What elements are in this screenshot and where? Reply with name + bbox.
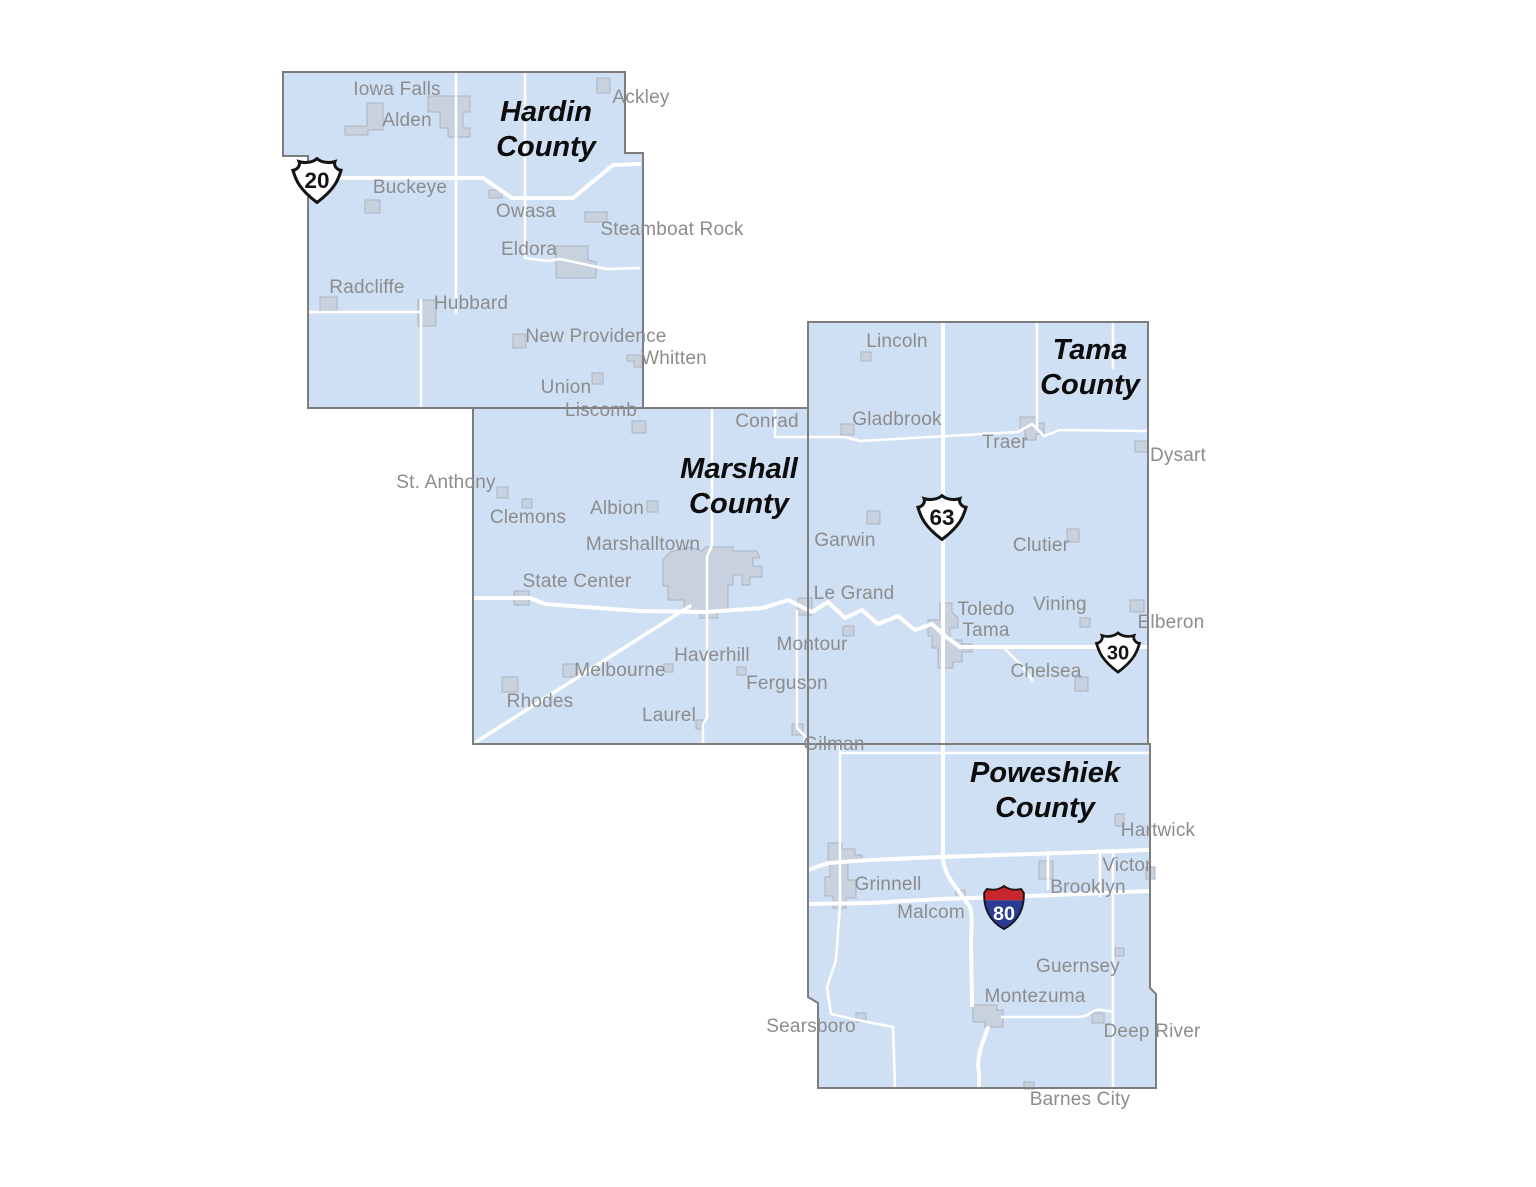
town-label-grinnell: Grinnell <box>854 874 921 896</box>
town-label-lincoln: Lincoln <box>866 331 928 353</box>
town-label-gilman: Gilman <box>803 734 864 756</box>
town-label-haverhill: Haverhill <box>674 645 750 667</box>
town-shape-buckeye <box>365 200 380 213</box>
town-label-radcliffe: Radcliffe <box>329 277 404 299</box>
town-label-hubbard: Hubbard <box>434 293 508 315</box>
county-label-marshall-county: MarshallCounty <box>680 452 798 522</box>
map-base-graphics <box>0 0 1536 1187</box>
town-label-malcom: Malcom <box>897 902 965 924</box>
town-label-owasa: Owasa <box>496 201 556 223</box>
town-label-alden: Alden <box>382 110 432 132</box>
town-label-deep-river: Deep River <box>1103 1021 1200 1043</box>
county-label-tama-county: TamaCounty <box>1040 333 1140 403</box>
svg-text:30: 30 <box>1107 642 1129 664</box>
town-shape-albion <box>647 501 658 512</box>
svg-text:20: 20 <box>305 168 330 193</box>
town-label-whitten: Whitten <box>641 348 707 370</box>
town-label-searsboro: Searsboro <box>766 1016 855 1038</box>
town-label-liscomb: Liscomb <box>565 400 637 422</box>
svg-text:63: 63 <box>930 505 955 530</box>
us-route-63-shield: 63 <box>916 494 968 546</box>
town-label-montezuma: Montezuma <box>984 986 1085 1008</box>
county-label-hardin-county: HardinCounty <box>496 95 596 165</box>
town-label-state-center: State Center <box>522 571 631 593</box>
svg-text:80: 80 <box>993 903 1015 925</box>
town-label-toledo: Toledo <box>957 599 1014 621</box>
town-shape-liscomb <box>632 421 646 433</box>
town-label-steamboat-rock: Steamboat Rock <box>600 219 743 241</box>
town-label-st-anthony: St. Anthony <box>396 472 495 494</box>
town-shape-lincoln <box>861 352 871 361</box>
town-label-marshalltown: Marshalltown <box>586 534 700 556</box>
town-shape-dysart <box>1135 441 1148 452</box>
town-shape-ackley <box>597 78 610 93</box>
town-label-new-providence: New Providence <box>525 326 666 348</box>
town-label-union: Union <box>541 377 592 399</box>
town-label-clemons: Clemons <box>490 507 566 529</box>
town-shape-radcliffe <box>320 297 337 311</box>
town-label-clutier: Clutier <box>1013 535 1069 557</box>
town-label-guernsey: Guernsey <box>1036 956 1120 978</box>
town-label-eldora: Eldora <box>501 239 557 261</box>
town-label-barnes-city: Barnes City <box>1030 1089 1130 1111</box>
town-shape-garwin <box>867 511 880 524</box>
town-label-traer: Traer <box>982 432 1028 454</box>
us-route-30-shield: 30 <box>1095 632 1141 679</box>
interstate-80-shield: 80 <box>982 884 1027 936</box>
county-label-poweshiek-county: PoweshiekCounty <box>970 756 1120 826</box>
town-label-ackley: Ackley <box>612 87 669 109</box>
town-shape-guernsey <box>1115 948 1124 956</box>
town-label-montour: Montour <box>776 634 847 656</box>
town-label-brooklyn: Brooklyn <box>1050 877 1126 899</box>
town-shape-rhodes <box>502 677 518 692</box>
town-label-conrad: Conrad <box>735 411 799 433</box>
town-shape-vining <box>1080 618 1090 627</box>
town-label-hartwick: Hartwick <box>1121 820 1195 842</box>
town-shape-union <box>592 373 603 384</box>
town-shape-deep-river <box>1092 1013 1104 1023</box>
town-shape-elberon <box>1130 600 1144 612</box>
town-label-le-grand: Le Grand <box>814 583 895 605</box>
town-label-victor: Victor <box>1102 855 1151 877</box>
town-label-rhodes: Rhodes <box>507 691 574 713</box>
town-label-dysart: Dysart <box>1150 445 1206 467</box>
town-shape-new-providence <box>513 334 526 348</box>
town-label-melbourne: Melbourne <box>574 660 666 682</box>
county-map: Iowa FallsAldenAckleyBuckeyeOwasaSteambo… <box>0 0 1536 1187</box>
town-label-elberon: Elberon <box>1138 612 1205 634</box>
town-label-laurel: Laurel <box>642 705 696 727</box>
town-label-buckeye: Buckeye <box>373 177 447 199</box>
town-label-vining: Vining <box>1033 594 1087 616</box>
town-label-chelsea: Chelsea <box>1010 661 1081 683</box>
town-label-tama: Tama <box>962 620 1009 642</box>
town-label-ferguson: Ferguson <box>746 673 828 695</box>
us-route-20-shield: 20 <box>291 157 343 209</box>
town-label-albion: Albion <box>590 498 644 520</box>
town-label-garwin: Garwin <box>814 530 875 552</box>
town-shape-st-anthony <box>497 487 508 498</box>
town-shape-ferguson <box>737 667 746 675</box>
town-label-gladbrook: Gladbrook <box>852 409 941 431</box>
town-label-iowa-falls: Iowa Falls <box>353 79 441 101</box>
